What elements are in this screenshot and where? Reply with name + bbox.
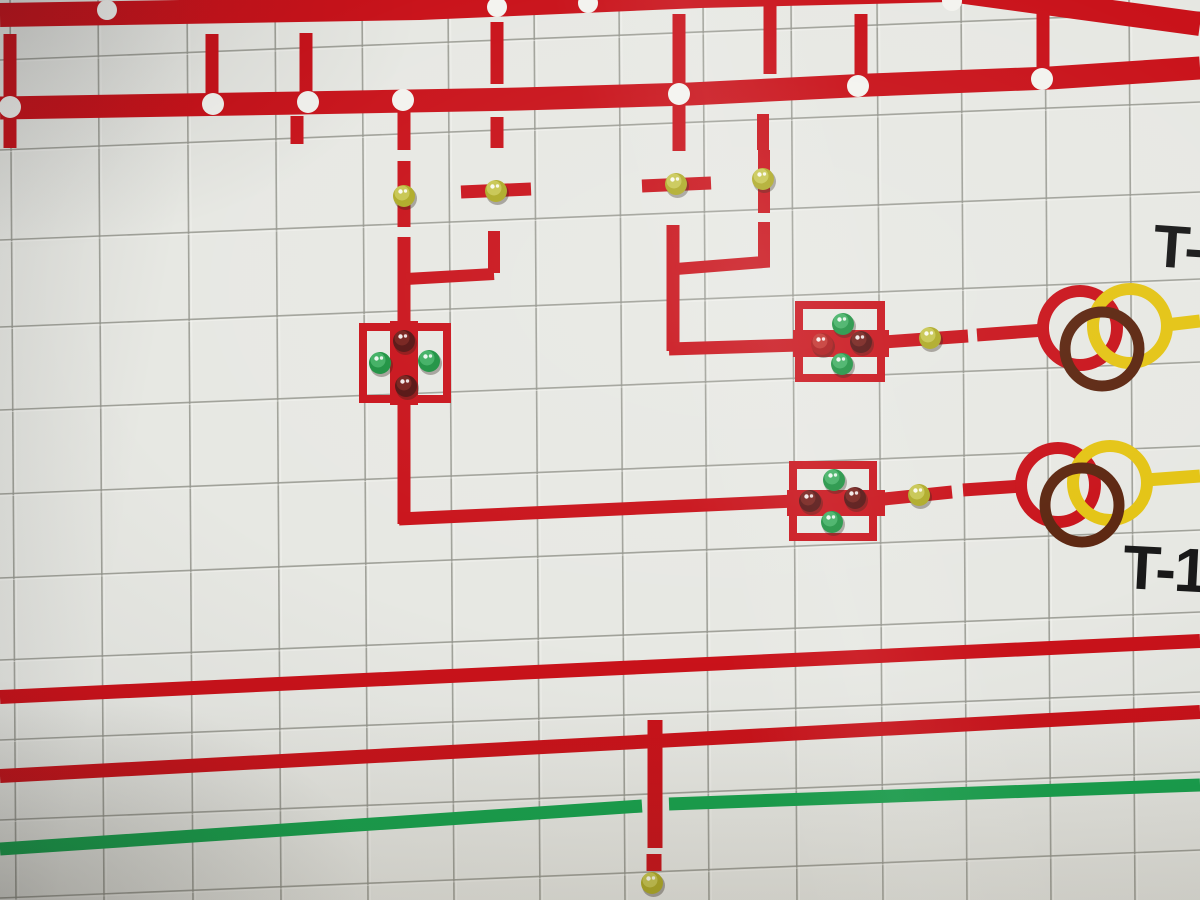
feeder1	[363, 112, 795, 524]
feeder1-branch-line	[406, 274, 494, 279]
transformer1-label: T-	[1151, 212, 1200, 282]
tile-joint-horizontal	[0, 192, 1200, 240]
lower-red-bus2	[0, 712, 1200, 776]
top-busbar-line	[0, 0, 1200, 24]
tile-joint-highlight	[0, 364, 1200, 412]
lower-red-bus1	[0, 641, 1200, 697]
breaker1-right-lamp-green-led	[418, 350, 442, 375]
transformer1-lv-line	[1166, 321, 1200, 325]
second-busbar	[0, 68, 1200, 148]
feeder2-branch-return	[676, 222, 764, 269]
feeder2-line-lamp-yellow-led	[665, 173, 689, 198]
bus-dot	[392, 89, 414, 111]
tile-joint-horizontal	[0, 850, 1200, 898]
bus-dot	[942, 0, 962, 11]
tile-joint-highlight	[0, 281, 1200, 329]
bus-dot	[0, 96, 21, 118]
green-line	[0, 806, 642, 849]
transformer2-label: T-1	[1121, 533, 1200, 606]
feeder1-run-to-breaker3	[399, 501, 795, 519]
transformer2-lv-line	[1146, 476, 1200, 480]
second-busbar-line	[0, 68, 1200, 108]
mimic-board-photo: T- T-1	[0, 0, 1200, 900]
transformer1-symbol	[1043, 289, 1200, 386]
tile-joint-highlight	[0, 852, 1200, 900]
tile-joint-highlight	[0, 532, 1200, 580]
breaker1-left-lamp-green-led	[369, 352, 393, 377]
tile-joint-horizontal	[0, 362, 1200, 410]
bus-dot	[297, 91, 319, 113]
lower-section	[0, 641, 1200, 871]
bus-dot	[668, 83, 690, 105]
green-line	[669, 785, 1200, 804]
mimic-diagram: T- T-1	[0, 0, 1200, 900]
bus-dot	[202, 93, 224, 115]
bus-dot	[1031, 68, 1053, 90]
t2-feed-lamp-yellow-led	[908, 484, 932, 509]
bottom-feeder-lamp-yellow-led	[641, 872, 665, 897]
t2-feed-line	[963, 486, 1022, 490]
feeder1-line-lamp-yellow-led	[393, 185, 417, 210]
tile-joint-horizontal	[0, 530, 1200, 578]
t1-feed-line	[977, 330, 1045, 335]
tile-joint-horizontal	[0, 279, 1200, 327]
bus-dot	[847, 75, 869, 97]
tile-joint-highlight	[0, 194, 1200, 242]
feeder2-branch-lamp-yellow-led	[752, 168, 776, 193]
t1-feed-lamp-yellow-led	[919, 327, 943, 352]
bus-dot	[97, 0, 117, 20]
feeder2-run-to-breaker2	[669, 345, 800, 349]
